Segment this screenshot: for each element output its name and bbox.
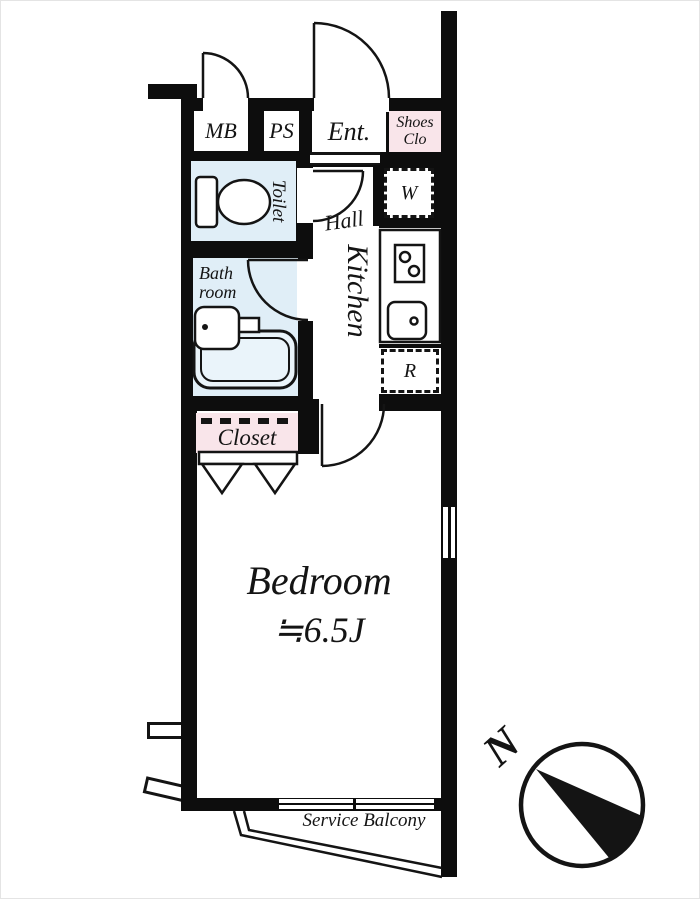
kitchen-label: Kitchen [339, 224, 375, 358]
toilet-label-text: Toilet [268, 180, 288, 223]
bathroom-label-text: Bath room [199, 264, 247, 302]
bathroom-sink-fixture [195, 307, 239, 349]
toilet-label: Toilet [267, 161, 289, 241]
mb-door-swing [203, 53, 248, 98]
toilet-fixture [196, 177, 270, 227]
kitchen-sink-fixture [388, 302, 426, 339]
compass-north-text: N [475, 719, 530, 775]
stove-fixture [395, 245, 424, 282]
bathroom-label: Bath room [199, 261, 261, 305]
entrance-door-swing [314, 23, 389, 98]
plan-linework [1, 1, 700, 899]
compass [521, 744, 643, 866]
floorplan-page: MB PS Ent. Shoes Clo Bath room W R Bedro… [0, 0, 700, 899]
service-balcony-label: Service Balcony [286, 811, 442, 831]
closet-folding-doors [202, 464, 295, 493]
closet-door-track [199, 452, 297, 464]
service-balcony-label-text: Service Balcony [303, 811, 426, 831]
bedroom-door-swing [322, 404, 384, 466]
kitchen-label-text: Kitchen [341, 244, 373, 337]
